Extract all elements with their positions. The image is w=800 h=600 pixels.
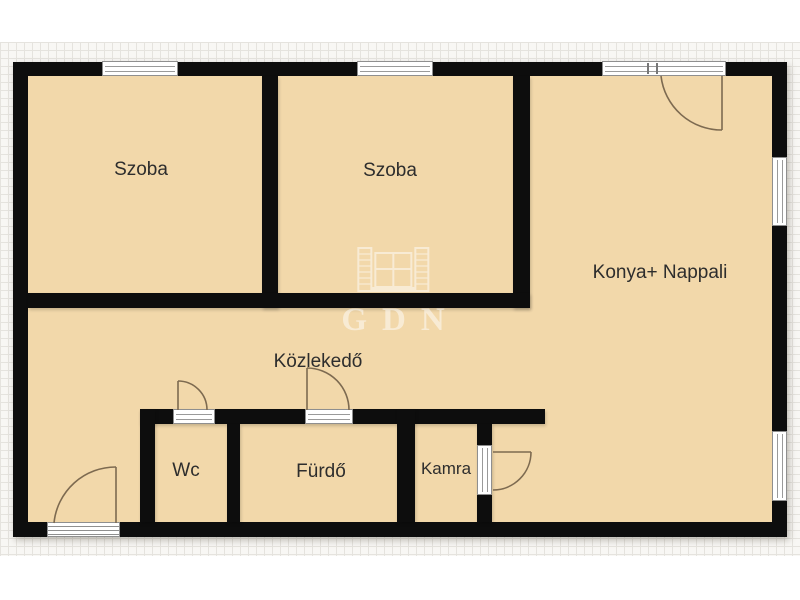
window-divider-tick [647, 63, 649, 74]
wall-wc-furdo [227, 424, 240, 522]
open-window-shutters-icon [355, 243, 431, 295]
window-divider-tick [656, 63, 658, 74]
wall-furdo-kamra [397, 409, 415, 522]
watermark-text: GDN [341, 302, 459, 339]
room-label-szoba-1: Szoba [114, 159, 168, 181]
room-label-wc: Wc [172, 460, 199, 482]
window-szoba2-top [357, 61, 433, 76]
window-konya-right-upper [772, 157, 787, 226]
room-label-konya-nappali: Konya+ Nappali [593, 262, 728, 284]
room-label-kamra: Kamra [421, 459, 471, 479]
wall-szoba2-konya [513, 76, 530, 308]
door-threshold-kamra [477, 445, 492, 495]
room-label-szoba-2: Szoba [363, 160, 417, 182]
room-label-furdo: Fürdő [296, 461, 346, 483]
window-konya-right-lower [772, 431, 787, 501]
window-konya-top [602, 61, 726, 76]
room-label-kozlekedo: Közlekedő [274, 351, 363, 373]
wall-szoba1-szoba2 [262, 76, 278, 308]
floor-plan: Szoba Szoba Konya+ Nappali Közlekedő Wc … [0, 0, 800, 600]
door-threshold-wc [173, 409, 215, 424]
wall-wc-left [140, 409, 155, 522]
door-threshold-furdo [305, 409, 353, 424]
watermark: GDN [341, 243, 444, 339]
door-threshold-entry-bottom [47, 522, 120, 537]
window-szoba1-top [102, 61, 178, 76]
